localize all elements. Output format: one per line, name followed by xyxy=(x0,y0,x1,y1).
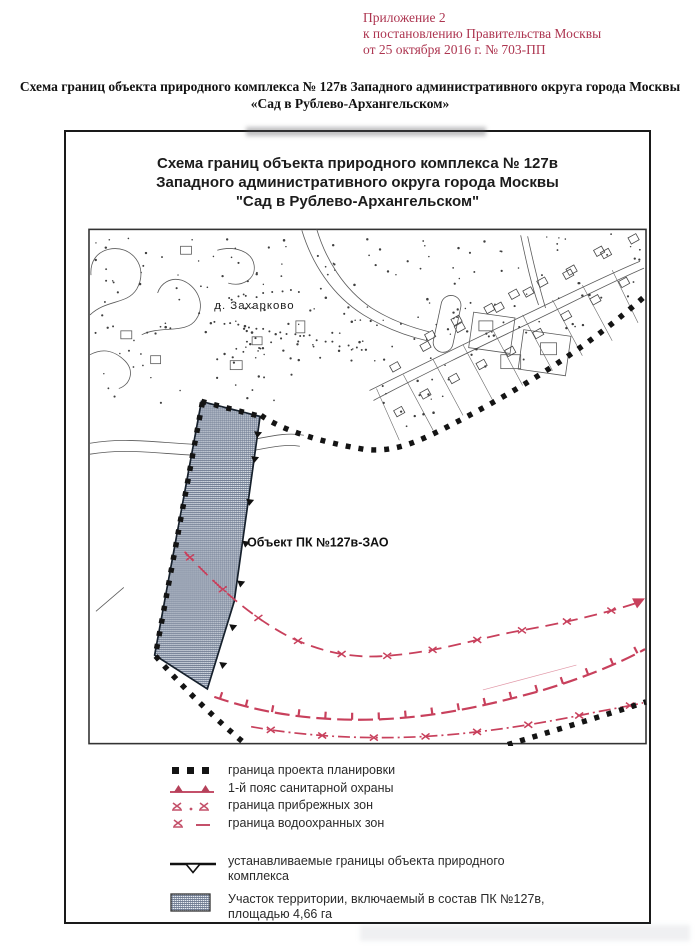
sanitary-belt-symbol xyxy=(170,781,216,795)
water-protection-symbol xyxy=(170,816,216,830)
document-title-line: Схема границ объекта природного комплекс… xyxy=(6,78,694,95)
annotation-line: Приложение 2 xyxy=(363,10,601,26)
panel-title-line: Западного административного округа город… xyxy=(66,173,649,192)
legend-label: граница водоохранных зон xyxy=(228,816,384,831)
annotation-line: от 25 октября 2016 г. № 703-ПП xyxy=(363,42,601,58)
object-label: Объект ПК №127в-ЗАО xyxy=(247,536,389,550)
map-frame: д. Захарково Объект ПК №127в-ЗАО xyxy=(88,228,648,746)
legend-row-sanitary-belt: 1-й пояс санитарной охраны xyxy=(170,780,620,798)
included-parcel-symbol xyxy=(170,893,216,916)
legend-row-water-protection: граница водоохранных зон xyxy=(170,815,620,833)
scan-ghost-artifact xyxy=(360,925,690,941)
legend-label: Участок территории, включаемый в состав … xyxy=(228,892,580,922)
panel-title-line: "Сад в Рублево-Архангельском" xyxy=(66,192,649,211)
page: { "annotation": { "color": "#ad3550", "l… xyxy=(0,0,700,949)
legend-row-established-boundaries: устанавливаемые границы объекта природно… xyxy=(170,854,620,884)
village-label: д. Захарково xyxy=(214,300,294,312)
legend-label: граница проекта планировки xyxy=(228,763,395,778)
legend-row-project-boundary: граница проекта планировки xyxy=(170,762,620,780)
annotation-line: к постановлению Правительства Москвы xyxy=(363,26,601,42)
scan-artifact xyxy=(246,127,486,136)
document-title-line: «Сад в Рублево-Архангельском» xyxy=(6,95,694,112)
panel-title-line: Схема границ объекта природного комплекс… xyxy=(66,154,649,173)
legend: граница проекта планировки 1-й пояс сани… xyxy=(170,762,620,922)
map-svg: д. Захарково Объект ПК №127в-ЗАО xyxy=(88,228,648,746)
legend-row-coastal-zone: граница прибрежных зон xyxy=(170,797,620,815)
legend-row-included-parcel: Участок территории, включаемый в состав … xyxy=(170,892,620,922)
established-boundaries-symbol xyxy=(170,858,216,879)
project-boundary-symbol xyxy=(170,764,216,778)
legend-label: устанавливаемые границы объекта природно… xyxy=(228,854,548,884)
legend-label: 1-й пояс санитарной охраны xyxy=(228,781,394,796)
legend-label: граница прибрежных зон xyxy=(228,798,373,813)
coastal-zone-symbol xyxy=(170,799,216,813)
schema-panel: Схема границ объекта природного комплекс… xyxy=(64,130,651,924)
appendix-annotation: Приложение 2 к постановлению Правительст… xyxy=(363,10,601,58)
panel-title: Схема границ объекта природного комплекс… xyxy=(66,154,649,211)
document-title: Схема границ объекта природного комплекс… xyxy=(6,78,694,112)
